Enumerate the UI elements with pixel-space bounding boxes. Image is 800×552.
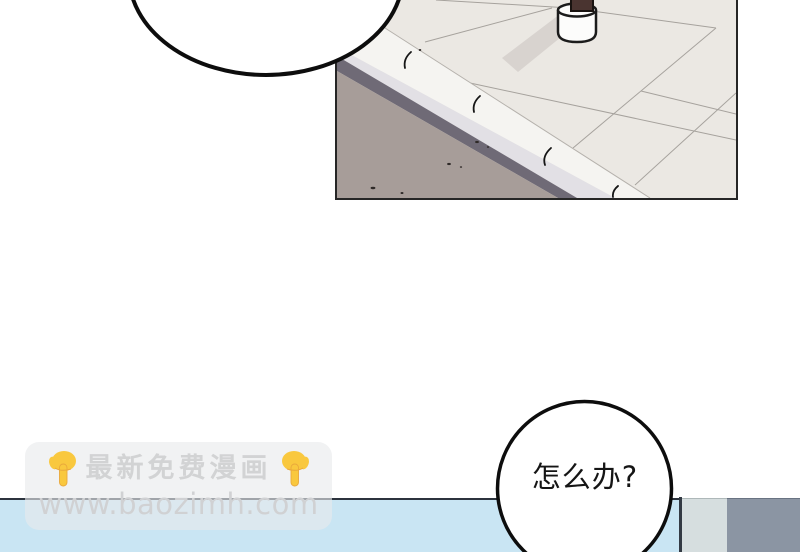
watermark-box: 最新免费漫画 www.baozimh.com: [25, 442, 332, 530]
speech-bubble-top-left: [125, 0, 410, 80]
backhand-index-pointing-down-icon: [279, 448, 311, 488]
watermark-url-text: www.baozimh.com: [38, 490, 318, 519]
watermark-promo-row: 最新免费漫画: [47, 447, 311, 489]
comic-page: 怎么办? 最新免费漫画 www.baozimh.com: [0, 0, 800, 552]
pole: [571, 0, 593, 11]
bottom-panel-light-block: [682, 498, 728, 552]
bottom-panel-gray-block: [727, 498, 800, 552]
backhand-index-pointing-down-icon: [47, 448, 79, 488]
watermark-promo-text: 最新免费漫画: [86, 455, 272, 482]
speech-bubble-text: 怎么办?: [505, 460, 665, 494]
